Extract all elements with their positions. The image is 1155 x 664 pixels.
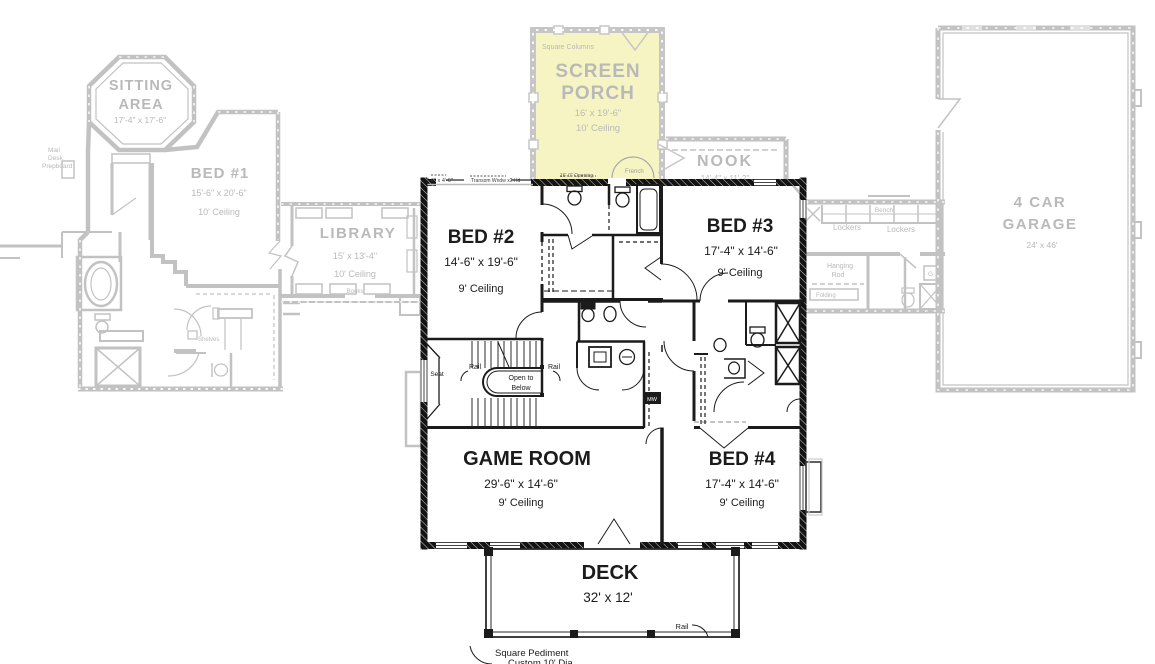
svg-text:AREA: AREA [118, 97, 163, 113]
svg-text:Folding: Folding [816, 293, 836, 299]
svg-text:G: G [928, 271, 933, 278]
svg-text:10' Ceiling: 10' Ceiling [334, 269, 376, 279]
svg-text:BED #2: BED #2 [448, 227, 515, 248]
svg-text:17'-4" x 14'-6": 17'-4" x 14'-6" [705, 477, 779, 491]
svg-text:15'-6" x 20'-6": 15'-6" x 20'-6" [191, 188, 246, 198]
svg-text:SITTING: SITTING [109, 78, 173, 94]
svg-text:Shelves: Shelves [198, 337, 219, 343]
svg-text:BED #3: BED #3 [707, 216, 774, 237]
svg-text:9' Ceiling: 9' Ceiling [499, 497, 544, 509]
svg-text:Rail: Rail [469, 364, 482, 371]
svg-text:Prepboard: Prepboard [42, 163, 73, 170]
svg-text:15' x 13'-4": 15' x 13'-4" [333, 251, 377, 261]
svg-text:Bench: Bench [875, 207, 894, 214]
svg-text:10' Ceiling: 10' Ceiling [198, 207, 240, 217]
svg-text:Rod: Rod [832, 272, 845, 279]
svg-text:GAME ROOM: GAME ROOM [463, 448, 591, 470]
svg-text:Open to: Open to [509, 375, 534, 382]
svg-text:MW: MW [647, 397, 658, 403]
svg-text:16' x 19'-6": 16' x 19'-6" [575, 108, 622, 119]
svg-text:LIBRARY: LIBRARY [320, 225, 397, 242]
svg-text:24' x 46': 24' x 46' [1026, 240, 1058, 250]
svg-text:Lockers: Lockers [833, 223, 861, 232]
svg-text:French: French [625, 169, 644, 175]
svg-text:Books: Books [347, 289, 364, 295]
svg-text:Square Columns: Square Columns [542, 44, 595, 51]
svg-text:Hanging: Hanging [827, 263, 853, 270]
svg-text:Seat: Seat [430, 371, 444, 378]
svg-text:10' Ceiling: 10' Ceiling [576, 123, 620, 134]
svg-text:DECK: DECK [582, 562, 639, 584]
svg-text:9' Ceiling: 9' Ceiling [459, 283, 504, 295]
svg-text:PORCH: PORCH [561, 83, 635, 104]
svg-text:Lockers: Lockers [887, 225, 915, 234]
svg-text:4 CAR: 4 CAR [1014, 194, 1067, 211]
svg-text:Custom 10' Dia...: Custom 10' Dia... [508, 658, 581, 664]
svg-text:BED #1: BED #1 [191, 165, 250, 182]
svg-text:Mail: Mail [48, 147, 60, 154]
svg-text:SCREEN: SCREEN [555, 61, 640, 82]
svg-text:Rail: Rail [676, 622, 689, 631]
svg-text:17'-4" x 14'-6": 17'-4" x 14'-6" [704, 244, 778, 258]
svg-text:14'-6" x 19'-6": 14'-6" x 19'-6" [444, 255, 518, 269]
svg-text:Below: Below [511, 385, 531, 392]
svg-text:Desk: Desk [48, 155, 64, 162]
svg-text:GARAGE: GARAGE [1003, 216, 1078, 233]
svg-text:BED #4: BED #4 [709, 449, 776, 470]
svg-text:17'-4" x 17'-6": 17'-4" x 17'-6" [114, 115, 166, 125]
svg-text:29'-6" x 14'-6": 29'-6" x 14'-6" [484, 477, 558, 491]
svg-text:Transom Wndw x2 Hd: Transom Wndw x2 Hd [471, 178, 520, 184]
svg-text:NOOK: NOOK [697, 153, 753, 170]
svg-text:9' Ceiling: 9' Ceiling [720, 497, 765, 509]
svg-text:9' Ceiling: 9' Ceiling [718, 267, 763, 279]
svg-text:32' x 12': 32' x 12' [583, 590, 632, 605]
svg-text:Rail: Rail [548, 364, 561, 371]
